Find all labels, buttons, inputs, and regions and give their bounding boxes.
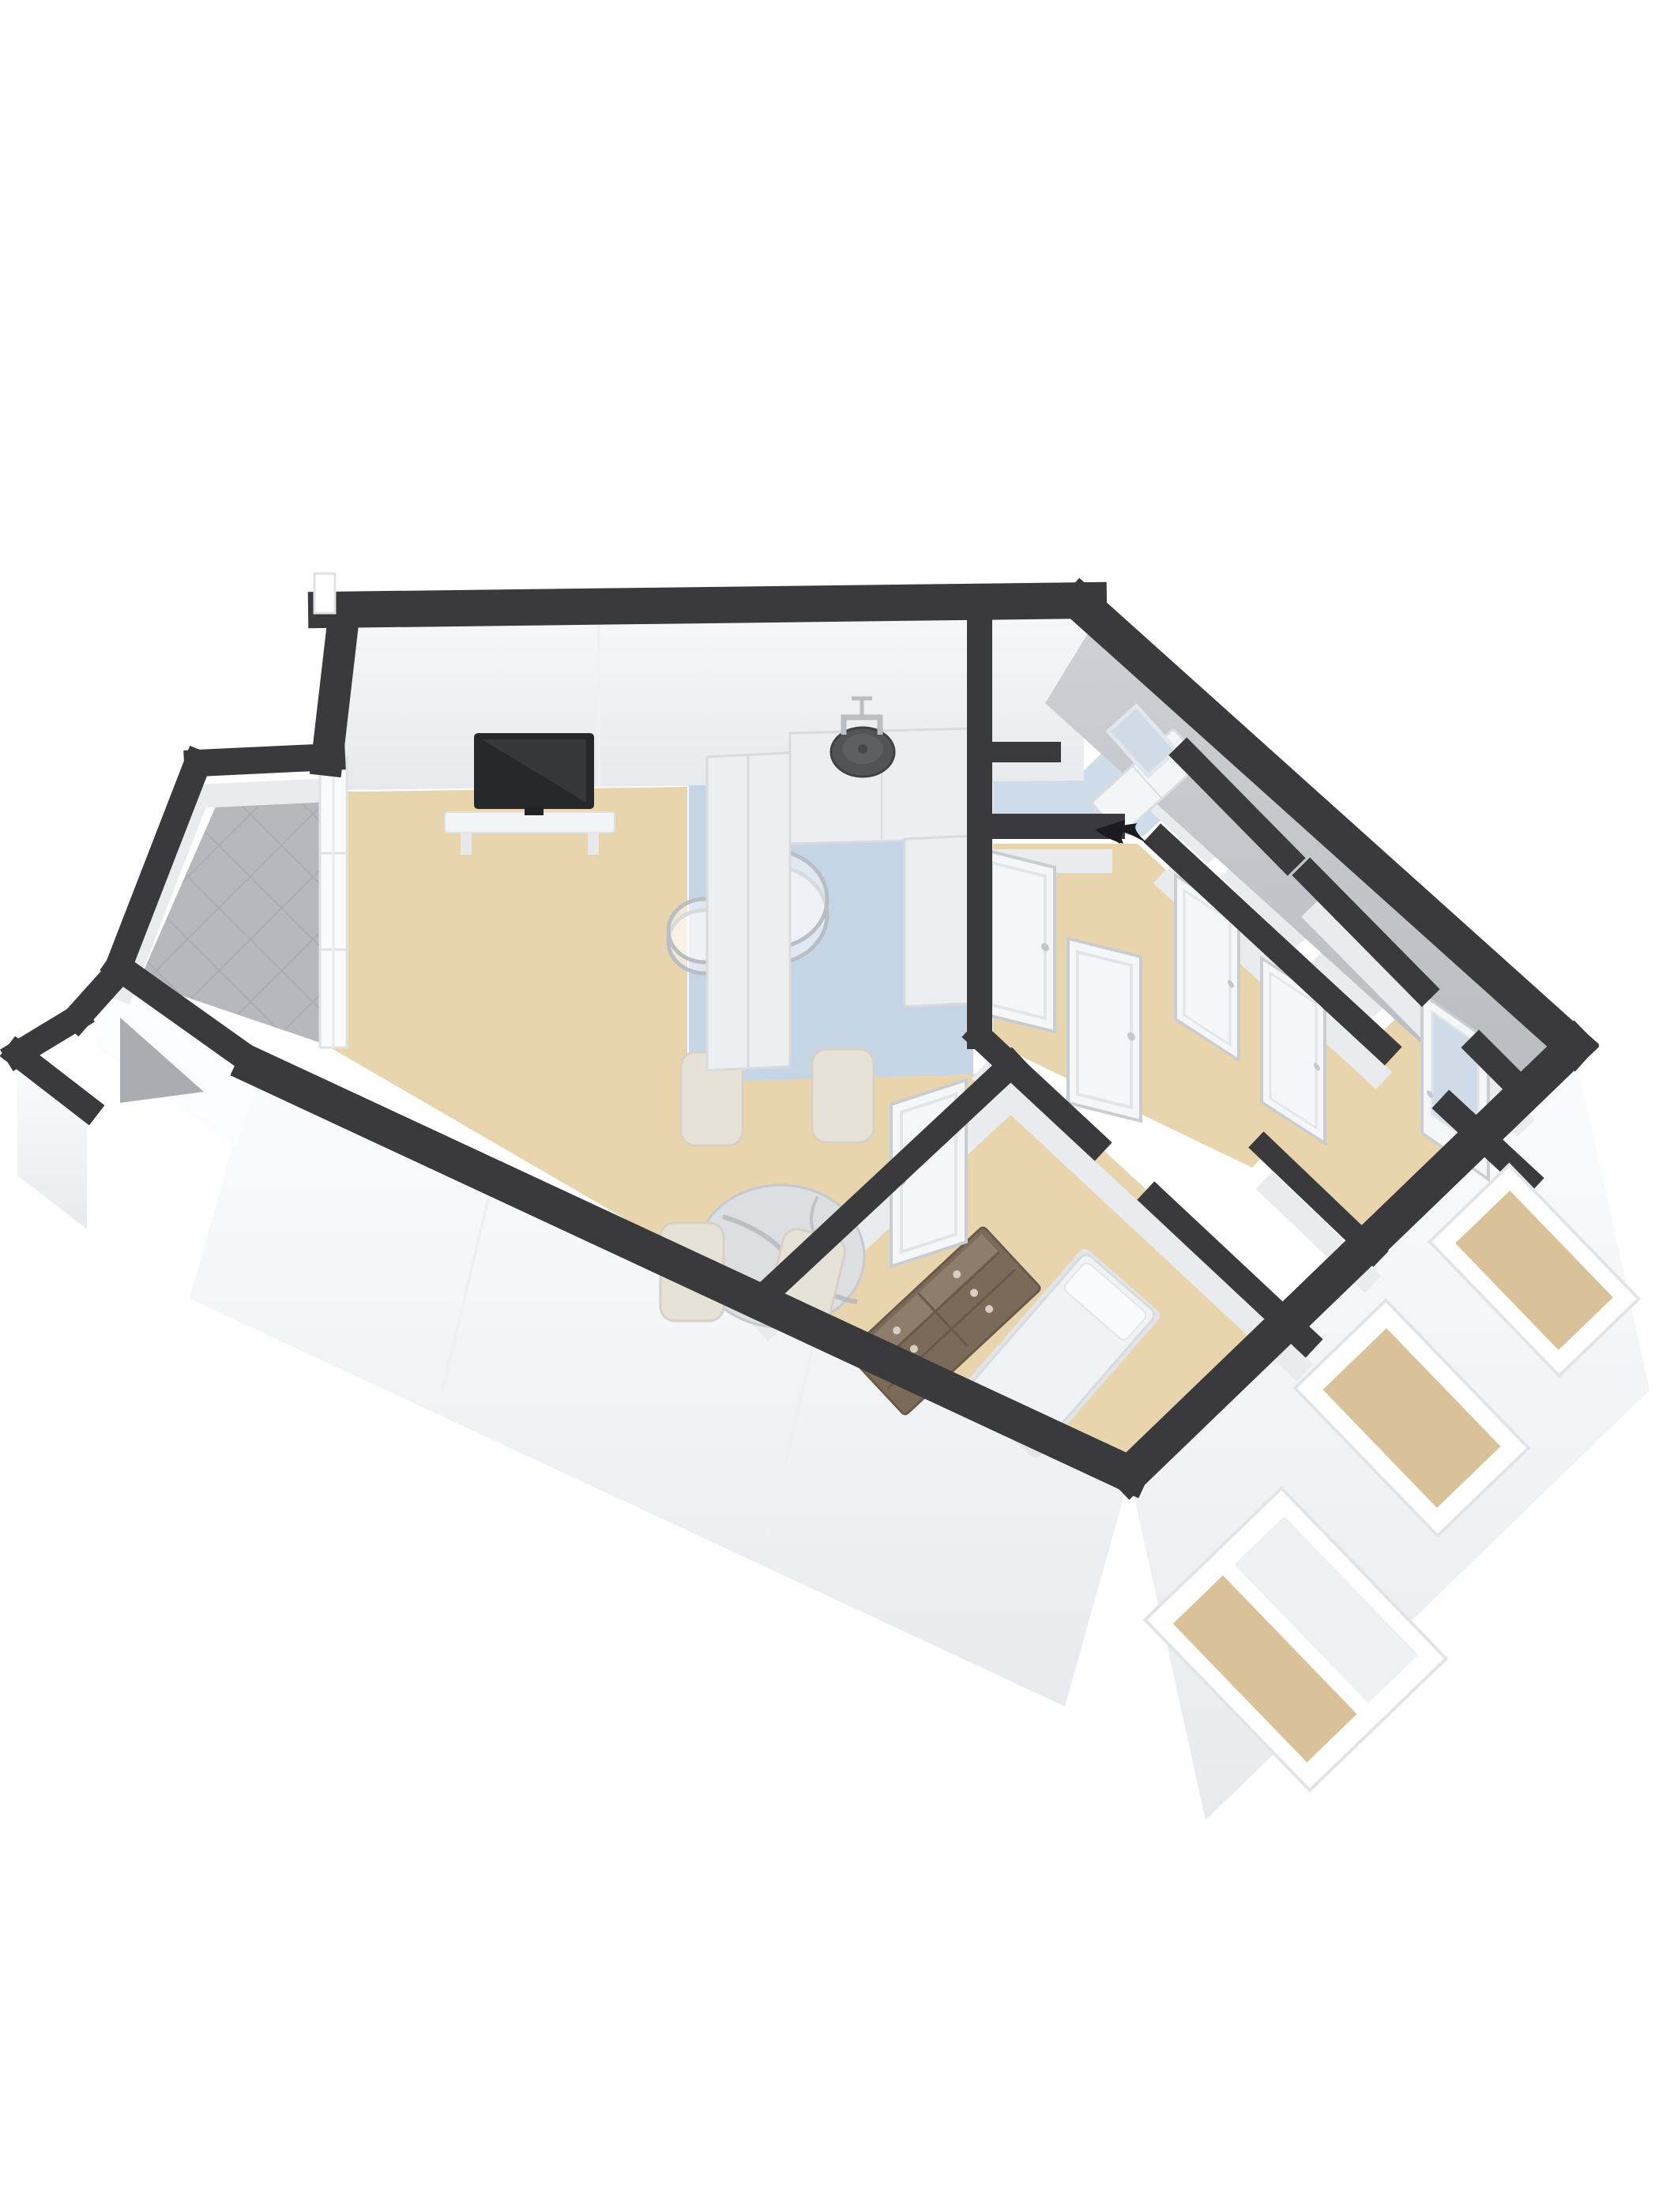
kitchen-sink (831, 728, 894, 777)
wall-notch (314, 574, 335, 613)
floorplan-3d-render (0, 0, 1659, 2212)
balcony-french-windows (320, 757, 347, 1048)
tv-icon (474, 733, 594, 815)
west-wall-band (327, 610, 344, 760)
floorplan-canvas (0, 0, 1659, 2212)
door-white (1068, 939, 1141, 1121)
door-white (982, 849, 1055, 1032)
